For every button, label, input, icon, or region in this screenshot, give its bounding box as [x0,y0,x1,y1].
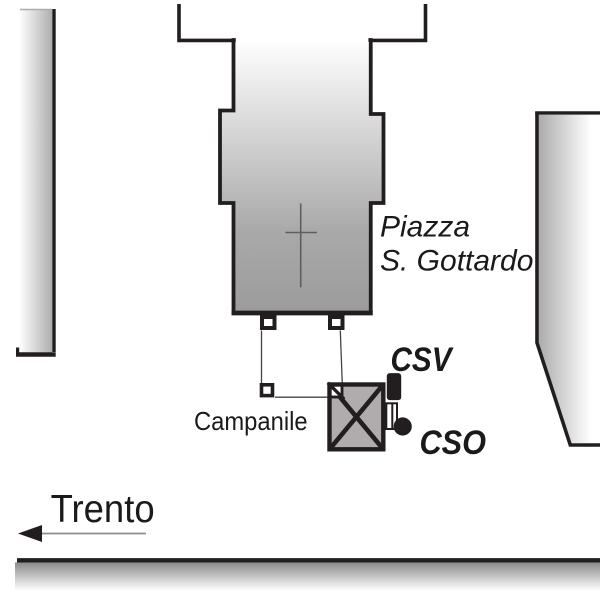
svg-text:CSV: CSV [391,341,455,379]
svg-text:S. Gottardo: S. Gottardo [380,244,533,277]
svg-text:Piazza: Piazza [380,210,470,243]
svg-text:Trento: Trento [51,488,155,531]
svg-text:CSO: CSO [420,424,487,462]
svg-text:Campanile: Campanile [194,406,308,436]
